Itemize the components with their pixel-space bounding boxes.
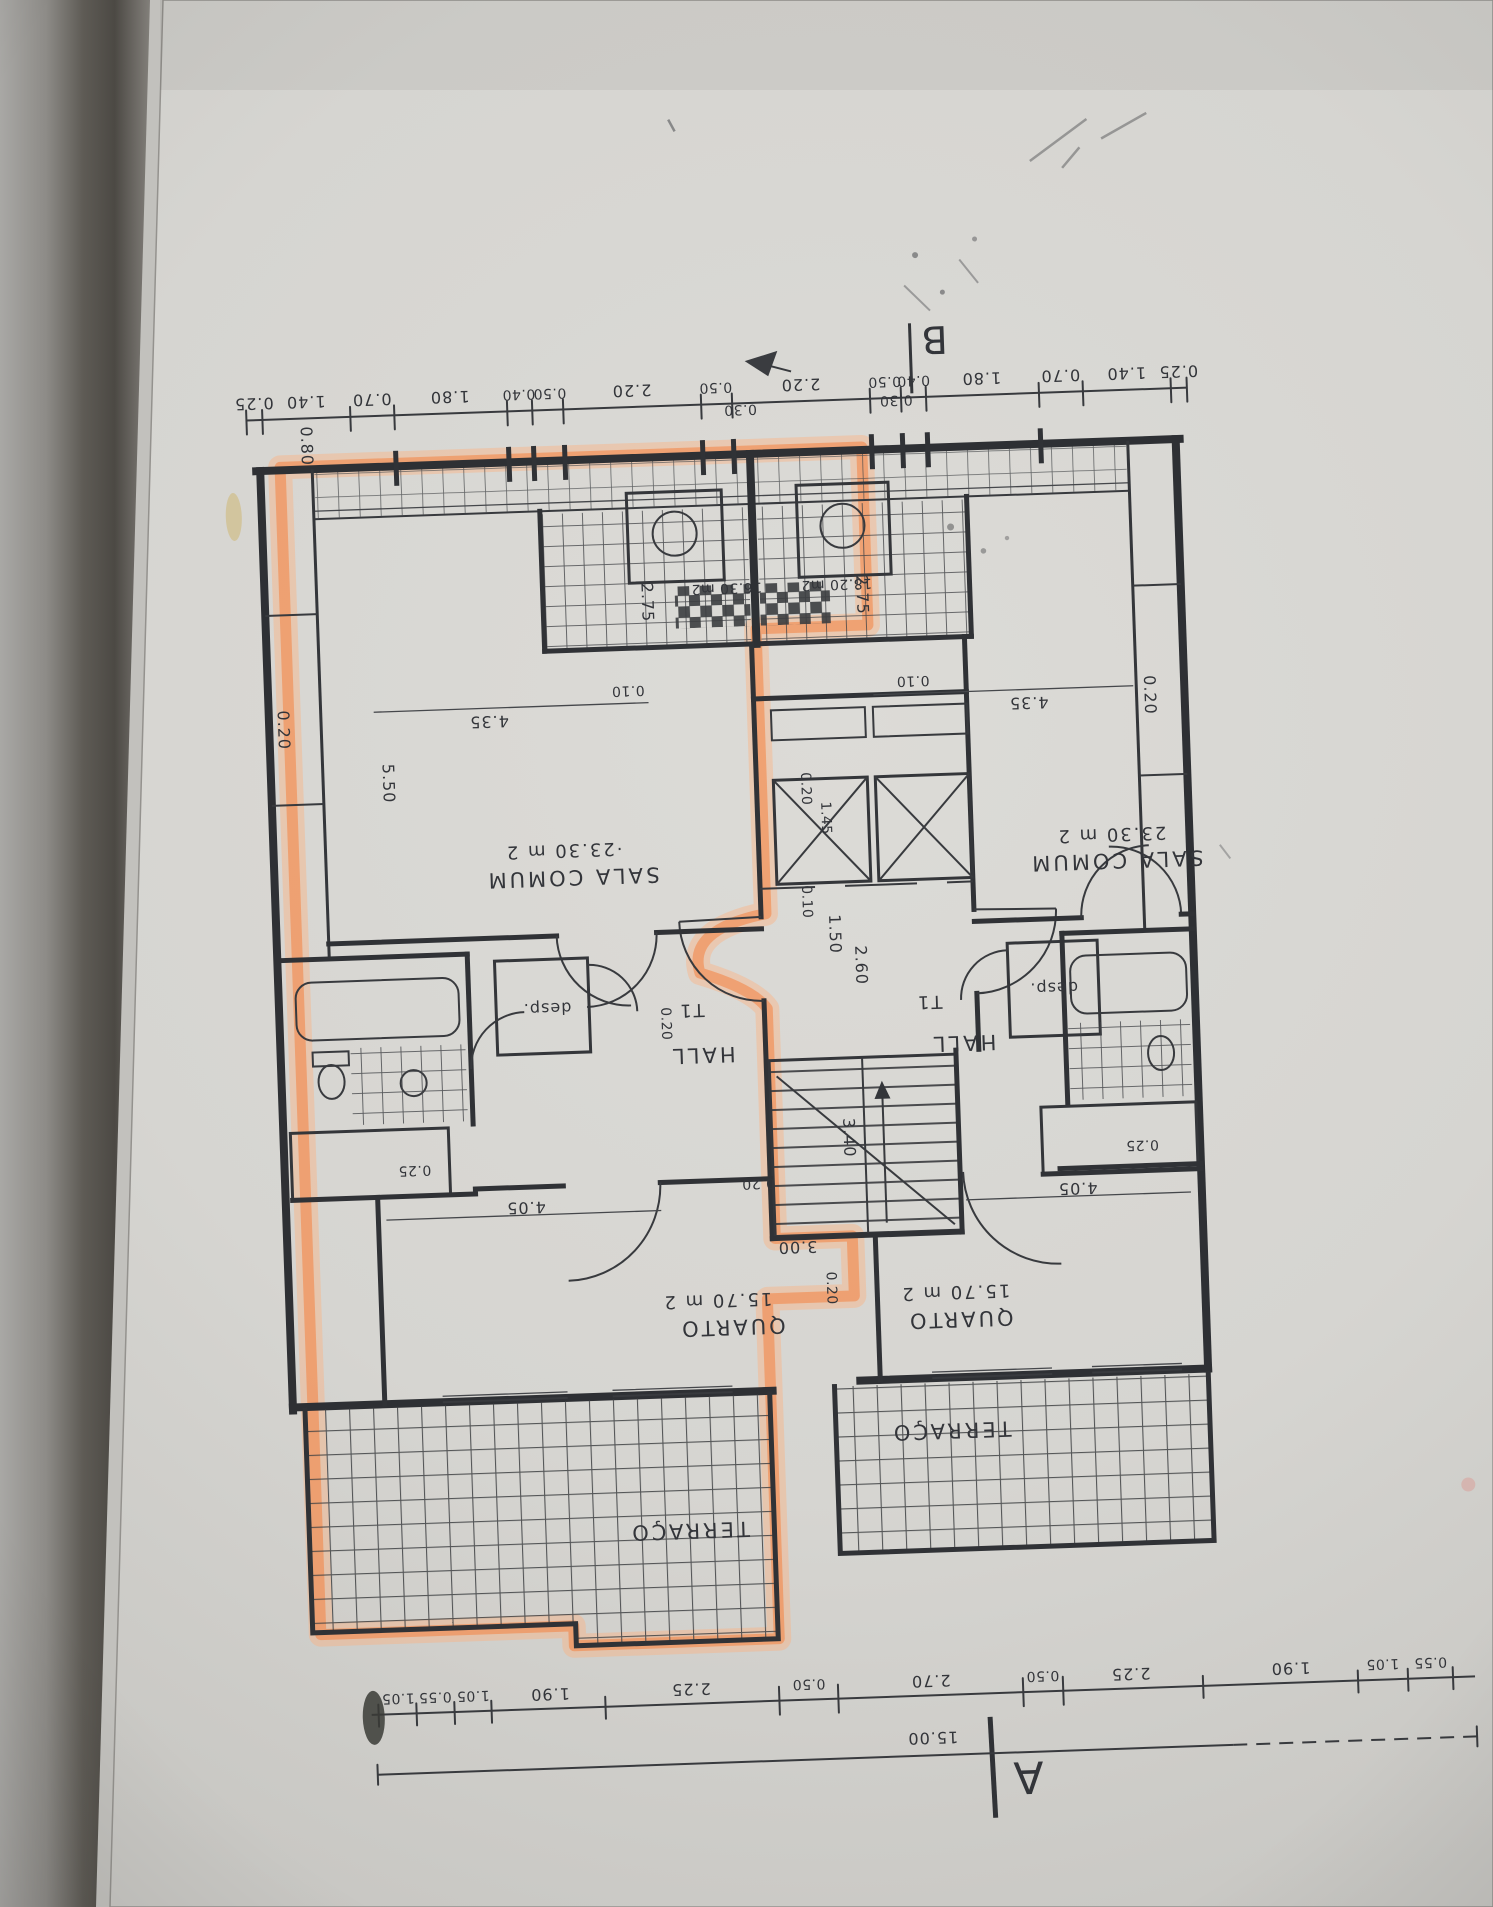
photo-of-floor-plan: 16.30 m2 18.20 m2: [0, 0, 1493, 1907]
vignette-overlay: [0, 0, 1493, 1907]
